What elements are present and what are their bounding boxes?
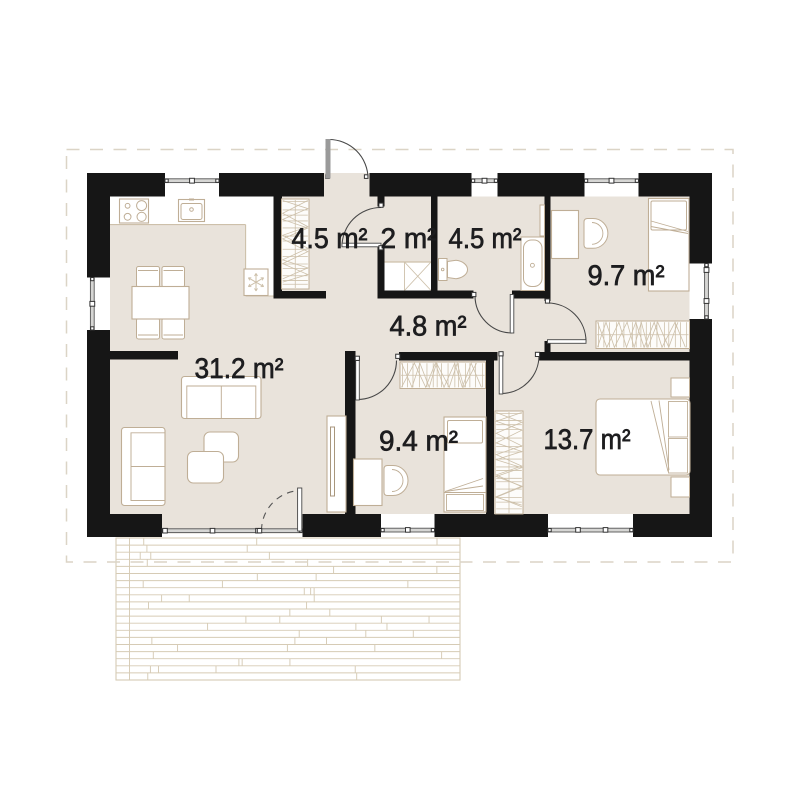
- svg-text:4.5 m²: 4.5 m²: [449, 223, 522, 255]
- svg-text:9.4 m²: 9.4 m²: [379, 426, 458, 458]
- svg-text:31.2 m²: 31.2 m²: [195, 353, 284, 385]
- svg-text:13.7 m²: 13.7 m²: [544, 424, 631, 456]
- svg-text:9.7 m²: 9.7 m²: [588, 260, 665, 292]
- svg-text:4.5 m²: 4.5 m²: [292, 223, 368, 255]
- svg-text:4.8 m²: 4.8 m²: [390, 311, 467, 343]
- svg-text:2 m²: 2 m²: [381, 223, 437, 255]
